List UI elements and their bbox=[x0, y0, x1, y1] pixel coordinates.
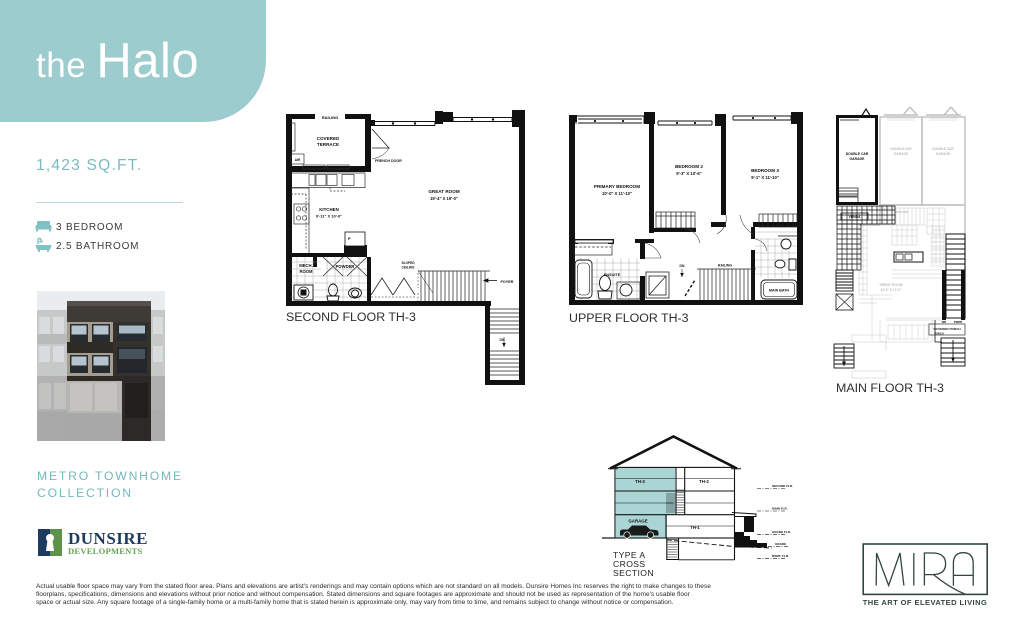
svg-text:RAILING: RAILING bbox=[322, 115, 338, 120]
svg-text:DEVELOPMENTS: DEVELOPMENTS bbox=[68, 546, 143, 556]
svg-text:TERRACE: TERRACE bbox=[317, 142, 339, 147]
svg-text:MAIN FLR.: MAIN FLR. bbox=[772, 507, 788, 511]
svg-text:9'-11" X 10'-0": 9'-11" X 10'-0" bbox=[316, 214, 342, 219]
svg-text:MAIN BATH: MAIN BATH bbox=[769, 289, 789, 293]
svg-text:POWDER: POWDER bbox=[336, 264, 355, 269]
svg-text:AIR: AIR bbox=[295, 158, 301, 162]
svg-text:19'-4" X 19'-0": 19'-4" X 19'-0" bbox=[430, 196, 458, 201]
svg-text:DN: DN bbox=[680, 264, 685, 268]
svg-text:FOYER: FOYER bbox=[500, 280, 513, 284]
svg-text:VRNDA: VRNDA bbox=[848, 215, 861, 219]
svg-text:GRADE: GRADE bbox=[775, 542, 786, 546]
svg-text:9'-1" X 11'-10": 9'-1" X 11'-10" bbox=[751, 175, 779, 180]
svg-text:MECH.: MECH. bbox=[299, 263, 313, 268]
svg-text:ROOM: ROOM bbox=[299, 269, 313, 274]
svg-text:BEDROOM 2: BEDROOM 2 bbox=[675, 164, 703, 169]
svg-text:9'-3" X 10'-6": 9'-3" X 10'-6" bbox=[676, 171, 702, 176]
svg-text:CEILING: CEILING bbox=[402, 266, 415, 270]
svg-text:PORCH: PORCH bbox=[934, 332, 943, 336]
svg-text:P: P bbox=[348, 236, 351, 241]
svg-text:KITCHEN: KITCHEN bbox=[319, 207, 339, 212]
svg-text:GRADE FLR.: GRADE FLR. bbox=[772, 530, 791, 534]
svg-text:GARAGE: GARAGE bbox=[894, 152, 908, 156]
svg-text:PWDR: PWDR bbox=[954, 320, 963, 324]
svg-text:GARAGE: GARAGE bbox=[628, 519, 647, 524]
svg-text:COVERED PORCH: COVERED PORCH bbox=[933, 327, 961, 331]
svg-text:DOUBLE CAR: DOUBLE CAR bbox=[890, 147, 912, 151]
svg-text:SECOND FLR.: SECOND FLR. bbox=[772, 484, 793, 488]
svg-text:BEDROOM 3: BEDROOM 3 bbox=[751, 168, 779, 173]
svg-text:GARAGE: GARAGE bbox=[850, 157, 866, 161]
svg-text:PRIMARY BEDROOM: PRIMARY BEDROOM bbox=[594, 184, 640, 189]
svg-text:DOUBLE CAR: DOUBLE CAR bbox=[846, 152, 869, 156]
svg-text:TH-1: TH-1 bbox=[690, 525, 700, 530]
svg-text:DN: DN bbox=[500, 338, 505, 342]
svg-text:DOUBLE CAR: DOUBLE CAR bbox=[932, 147, 954, 151]
svg-text:BSMT. FLR.: BSMT. FLR. bbox=[772, 554, 789, 558]
svg-text:TH-3: TH-3 bbox=[635, 479, 645, 484]
svg-text:RAILING: RAILING bbox=[718, 264, 732, 268]
svg-text:TH-2: TH-2 bbox=[699, 479, 709, 484]
svg-text:GARAGE: GARAGE bbox=[936, 152, 950, 156]
svg-text:MUD RM: MUD RM bbox=[896, 210, 908, 214]
svg-text:FRENCH DOOR: FRENCH DOOR bbox=[375, 159, 402, 163]
svg-text:ENSUITE: ENSUITE bbox=[604, 273, 621, 277]
svg-text:14'-0" X 17'-0": 14'-0" X 17'-0" bbox=[880, 288, 902, 292]
svg-text:GREAT ROOM: GREAT ROOM bbox=[428, 189, 459, 194]
svg-text:WR: WR bbox=[942, 320, 947, 324]
svg-text:GREAT ROOM: GREAT ROOM bbox=[879, 283, 902, 287]
svg-text:10'-0" X 11'-10": 10'-0" X 11'-10" bbox=[602, 191, 632, 196]
svg-text:COVERED: COVERED bbox=[317, 136, 340, 141]
svg-text:SLOPED: SLOPED bbox=[401, 261, 415, 265]
